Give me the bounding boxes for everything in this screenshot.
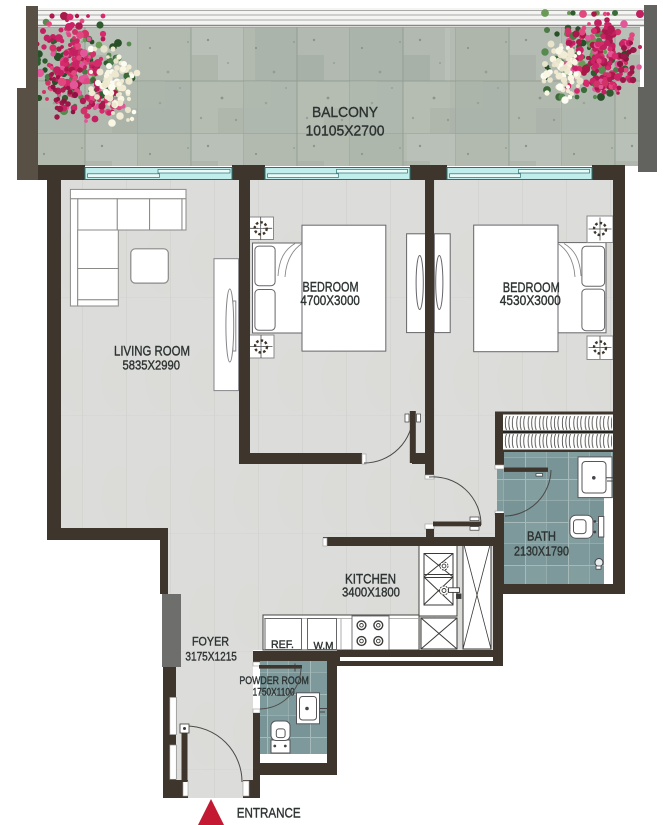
svg-text:REF.: REF. [271,639,294,651]
svg-text:10105X2700: 10105X2700 [306,123,385,140]
svg-text:2130X1790: 2130X1790 [514,544,569,559]
svg-text:W.M: W.M [314,640,334,652]
svg-text:3400X1800: 3400X1800 [342,585,400,600]
svg-text:BALCONY: BALCONY [312,104,378,121]
svg-text:4530X3000: 4530X3000 [500,293,561,308]
svg-text:LIVING ROOM: LIVING ROOM [114,344,190,359]
svg-text:FOYER: FOYER [192,635,229,649]
svg-text:3175X1215: 3175X1215 [185,650,237,664]
svg-text:4700X3000: 4700X3000 [300,293,360,308]
svg-text:ENTRANCE: ENTRANCE [237,806,301,822]
svg-text:BATH: BATH [527,529,556,544]
svg-text:5835X2990: 5835X2990 [123,358,181,373]
